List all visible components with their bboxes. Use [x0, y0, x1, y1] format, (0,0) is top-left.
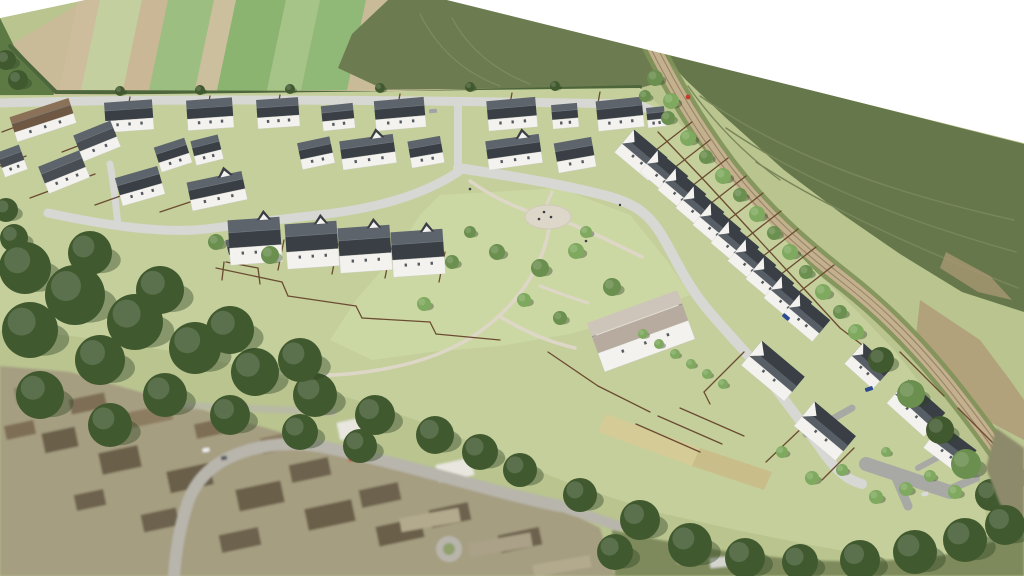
tree-highlight	[717, 170, 725, 178]
tree-highlight	[947, 522, 969, 544]
person-dot	[550, 216, 553, 219]
plaza-circle	[525, 205, 571, 229]
house-building	[407, 136, 444, 168]
tree-highlight	[570, 245, 578, 253]
tree-highlight	[639, 330, 644, 335]
tree-highlight	[662, 112, 669, 119]
tree-highlight	[900, 383, 914, 397]
house-building	[186, 97, 234, 130]
tree-highlight	[682, 132, 690, 140]
house-building	[551, 103, 579, 129]
tree-highlight	[376, 84, 381, 89]
shape-circle	[443, 543, 455, 555]
tree-highlight	[196, 86, 201, 91]
tree-highlight	[554, 312, 561, 319]
tree-highlight	[236, 353, 260, 377]
tree-highlight	[210, 236, 218, 244]
tree-highlight	[844, 544, 864, 564]
tree-highlight	[786, 548, 804, 566]
tree-highlight	[518, 294, 525, 301]
tree-highlight	[777, 447, 783, 453]
tree-highlight	[113, 300, 141, 328]
tree-highlight	[446, 256, 453, 263]
person-dot	[543, 211, 546, 214]
tree-highlight	[10, 72, 20, 82]
tree-highlight	[649, 72, 657, 80]
tree-highlight	[949, 486, 956, 493]
tree-highlight	[51, 271, 81, 301]
tree-highlight	[147, 377, 169, 399]
tree-highlight	[418, 298, 425, 305]
tree-highlight	[92, 407, 114, 429]
tree-highlight	[989, 509, 1009, 529]
tree-highlight	[21, 376, 45, 400]
tree-highlight	[4, 247, 30, 273]
tree-highlight	[751, 208, 759, 216]
tree-highlight	[420, 420, 439, 439]
tree-highlight	[700, 151, 707, 158]
tree-highlight	[665, 95, 673, 103]
tree-highlight	[581, 227, 587, 233]
tree-highlight	[837, 465, 843, 471]
tree-highlight	[671, 350, 676, 355]
tree-highlight	[978, 482, 994, 498]
tree-highlight	[925, 471, 931, 477]
tree-highlight	[768, 227, 775, 234]
tree-highlight	[286, 85, 291, 90]
tree-highlight	[211, 311, 235, 335]
tree-highlight	[491, 246, 499, 254]
tree-highlight	[954, 452, 969, 467]
car-dark	[221, 456, 227, 461]
tree-highlight	[282, 342, 304, 364]
house-building	[374, 97, 426, 131]
tree-highlight	[8, 308, 36, 336]
tree-highlight	[655, 340, 660, 345]
tree-highlight	[465, 227, 471, 233]
tree-highlight	[850, 326, 858, 334]
tree-highlight	[605, 280, 614, 289]
tree-highlight	[882, 448, 887, 453]
tree-highlight	[672, 527, 694, 549]
tree-highlight	[601, 538, 619, 556]
tree-highlight	[719, 380, 724, 385]
tree-highlight	[784, 246, 792, 254]
house-building	[486, 97, 537, 131]
tree-highlight	[624, 504, 644, 524]
tree-highlight	[800, 266, 807, 273]
tree-highlight	[703, 370, 708, 375]
people-dots	[686, 95, 691, 100]
tree-highlight	[286, 418, 304, 436]
tree-highlight	[72, 235, 94, 257]
tree-highlight	[871, 350, 884, 363]
tree-highlight	[533, 261, 542, 270]
tree-highlight	[640, 91, 646, 97]
car-gray	[429, 109, 437, 114]
tree-highlight	[806, 472, 813, 479]
person-dot	[686, 95, 691, 100]
person-dot	[619, 204, 621, 206]
house-building	[321, 103, 355, 131]
tree-highlight	[466, 438, 484, 456]
tree-highlight	[359, 399, 379, 419]
tree-highlight	[551, 82, 556, 87]
house-building	[256, 97, 300, 129]
masterplan-aerial-view	[0, 0, 1024, 576]
tree-highlight	[900, 483, 907, 490]
tree-highlight	[141, 271, 165, 295]
tree-highlight	[729, 542, 749, 562]
tree-highlight	[506, 456, 523, 473]
tree-highlight	[687, 360, 692, 365]
aerial-masterplan-render	[0, 0, 1024, 576]
tree-highlight	[834, 306, 841, 313]
tree-highlight	[214, 399, 234, 419]
person-dot	[585, 240, 588, 243]
house-building	[596, 97, 645, 132]
tree-highlight	[116, 87, 121, 92]
tree-highlight	[566, 481, 583, 498]
tree-highlight	[466, 83, 471, 88]
tree-highlight	[346, 432, 363, 449]
tree-highlight	[3, 227, 17, 241]
tree-highlight	[734, 189, 741, 196]
tree-highlight	[870, 491, 877, 498]
person-dot	[469, 188, 472, 191]
tree-highlight	[929, 419, 943, 433]
tree-highlight	[897, 534, 919, 556]
tree-highlight	[263, 248, 272, 257]
tree-highlight	[80, 340, 105, 365]
person-dot	[538, 218, 541, 221]
tree-highlight	[174, 327, 200, 353]
tree-highlight	[817, 286, 825, 294]
